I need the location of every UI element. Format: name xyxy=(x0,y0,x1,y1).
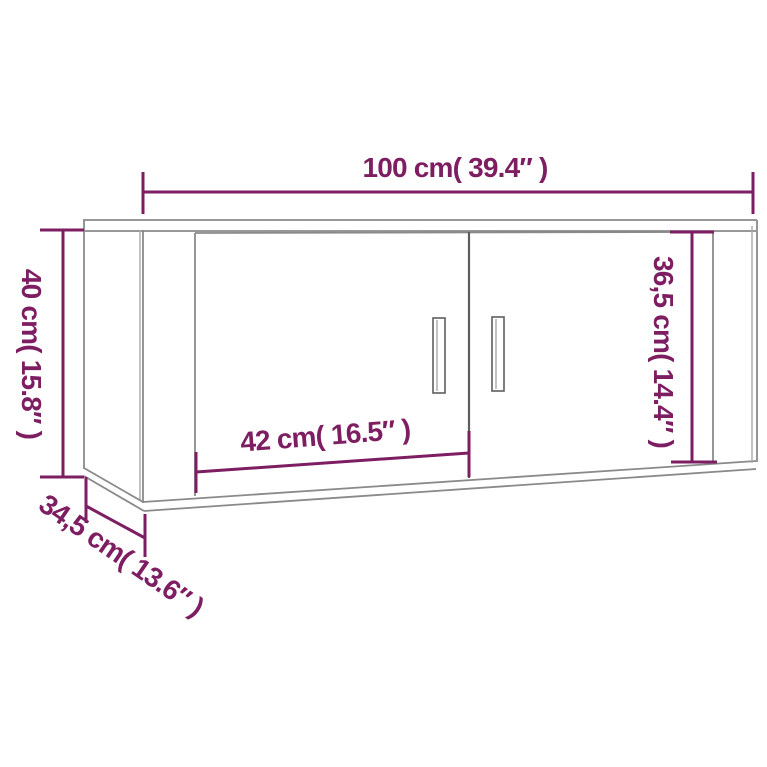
cabinet-bottom-edge xyxy=(143,461,756,502)
cabinet-bottom-underside-edge xyxy=(144,469,756,511)
dimension-annotations xyxy=(40,172,753,557)
dimension-label-door-width: 42 cm( 16.5″ ) xyxy=(239,413,411,457)
cabinet-bottom-left-underside-edge xyxy=(84,476,144,511)
dimension-label-height: 40 cm( 15.8″ ) xyxy=(16,269,47,439)
door-top-edge xyxy=(195,232,713,233)
dimension-label-width: 100 cm( 39.4″ ) xyxy=(362,152,547,183)
dimension-labels: 100 cm( 39.4″ ) 40 cm( 15.8″ ) 36,5 cm( … xyxy=(16,152,679,622)
dimension-label-door-height: 36,5 cm( 14.4″ ) xyxy=(648,256,679,448)
cabinet-bottom-left-edge xyxy=(84,468,143,502)
dimension-diagram: 100 cm( 39.4″ ) 40 cm( 15.8″ ) 36,5 cm( … xyxy=(0,0,767,767)
left-door-handle xyxy=(433,318,445,393)
dimension-line-door-width xyxy=(196,453,469,472)
product-dimension-image: 100 cm( 39.4″ ) 40 cm( 15.8″ ) 36,5 cm( … xyxy=(0,0,767,767)
right-door-handle xyxy=(492,317,504,391)
